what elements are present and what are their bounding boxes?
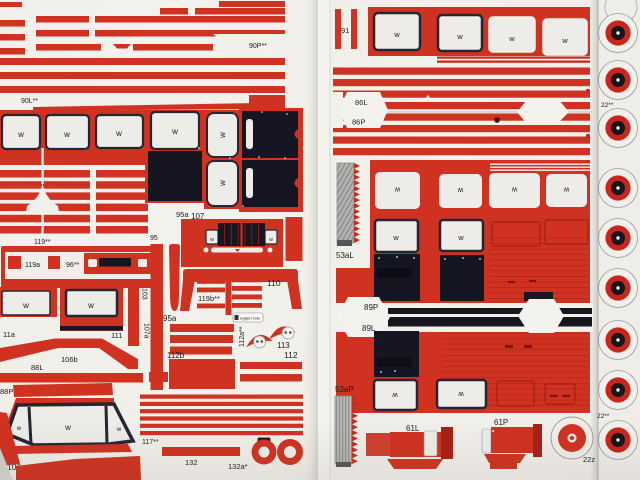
svg-text:w: w <box>508 34 515 43</box>
svg-text:w: w <box>457 186 464 195</box>
svg-text:w: w <box>393 30 400 39</box>
svg-text:110: 110 <box>267 278 281 288</box>
svg-text:106b: 106b <box>61 355 78 364</box>
svg-text:91: 91 <box>341 26 349 35</box>
svg-text:96**: 96** <box>66 262 80 269</box>
svg-text:88L: 88L <box>31 363 44 372</box>
svg-text:53aP: 53aP <box>335 385 354 394</box>
svg-text:w: w <box>22 301 29 310</box>
svg-text:w: w <box>394 186 401 195</box>
svg-text:w: w <box>210 237 214 243</box>
svg-text:w: w <box>457 233 464 242</box>
svg-text:w: w <box>115 129 122 138</box>
svg-text:95a: 95a <box>176 210 189 219</box>
svg-text:90P**: 90P** <box>249 43 267 50</box>
svg-text:107a: 107a <box>143 323 150 339</box>
svg-text:w: w <box>218 180 227 187</box>
svg-text:w: w <box>218 132 227 139</box>
svg-text:w: w <box>561 36 568 45</box>
svg-text:113: 113 <box>277 341 290 350</box>
svg-text:89P: 89P <box>364 303 378 312</box>
svg-text:86P: 86P <box>352 118 365 127</box>
svg-text:11a: 11a <box>3 330 16 339</box>
svg-text:w: w <box>563 186 570 195</box>
svg-text:w: w <box>456 32 463 41</box>
svg-text:88P: 88P <box>0 387 13 396</box>
svg-text:89L: 89L <box>362 324 376 333</box>
svg-text:90L**: 90L** <box>21 98 38 105</box>
svg-text:119**: 119** <box>34 239 51 246</box>
svg-text:w: w <box>458 390 465 399</box>
svg-text:112a**: 112a** <box>239 326 246 347</box>
svg-text:112: 112 <box>284 350 298 360</box>
svg-text:22**: 22** <box>597 413 610 420</box>
svg-text:w: w <box>17 130 24 139</box>
svg-text:w: w <box>392 391 399 400</box>
svg-text:103: 103 <box>141 288 148 300</box>
svg-text:w: w <box>269 237 273 243</box>
svg-text:w: w <box>171 127 178 136</box>
svg-text:119a: 119a <box>25 262 40 269</box>
svg-text:w: w <box>511 186 518 195</box>
svg-text:wygląd z boku: wygląd z boku <box>240 317 260 321</box>
svg-text:53aL: 53aL <box>336 251 354 260</box>
svg-text:95: 95 <box>150 235 158 242</box>
svg-text:w: w <box>392 233 399 242</box>
svg-text:w: w <box>63 130 70 139</box>
svg-text:112b: 112b <box>167 351 185 360</box>
svg-text:95a: 95a <box>163 314 177 323</box>
svg-text:w: w <box>87 301 94 310</box>
svg-text:119b**: 119b** <box>198 294 220 303</box>
svg-text:22**: 22** <box>601 102 614 109</box>
svg-text:86L: 86L <box>355 98 368 107</box>
svg-text:111: 111 <box>111 331 122 340</box>
